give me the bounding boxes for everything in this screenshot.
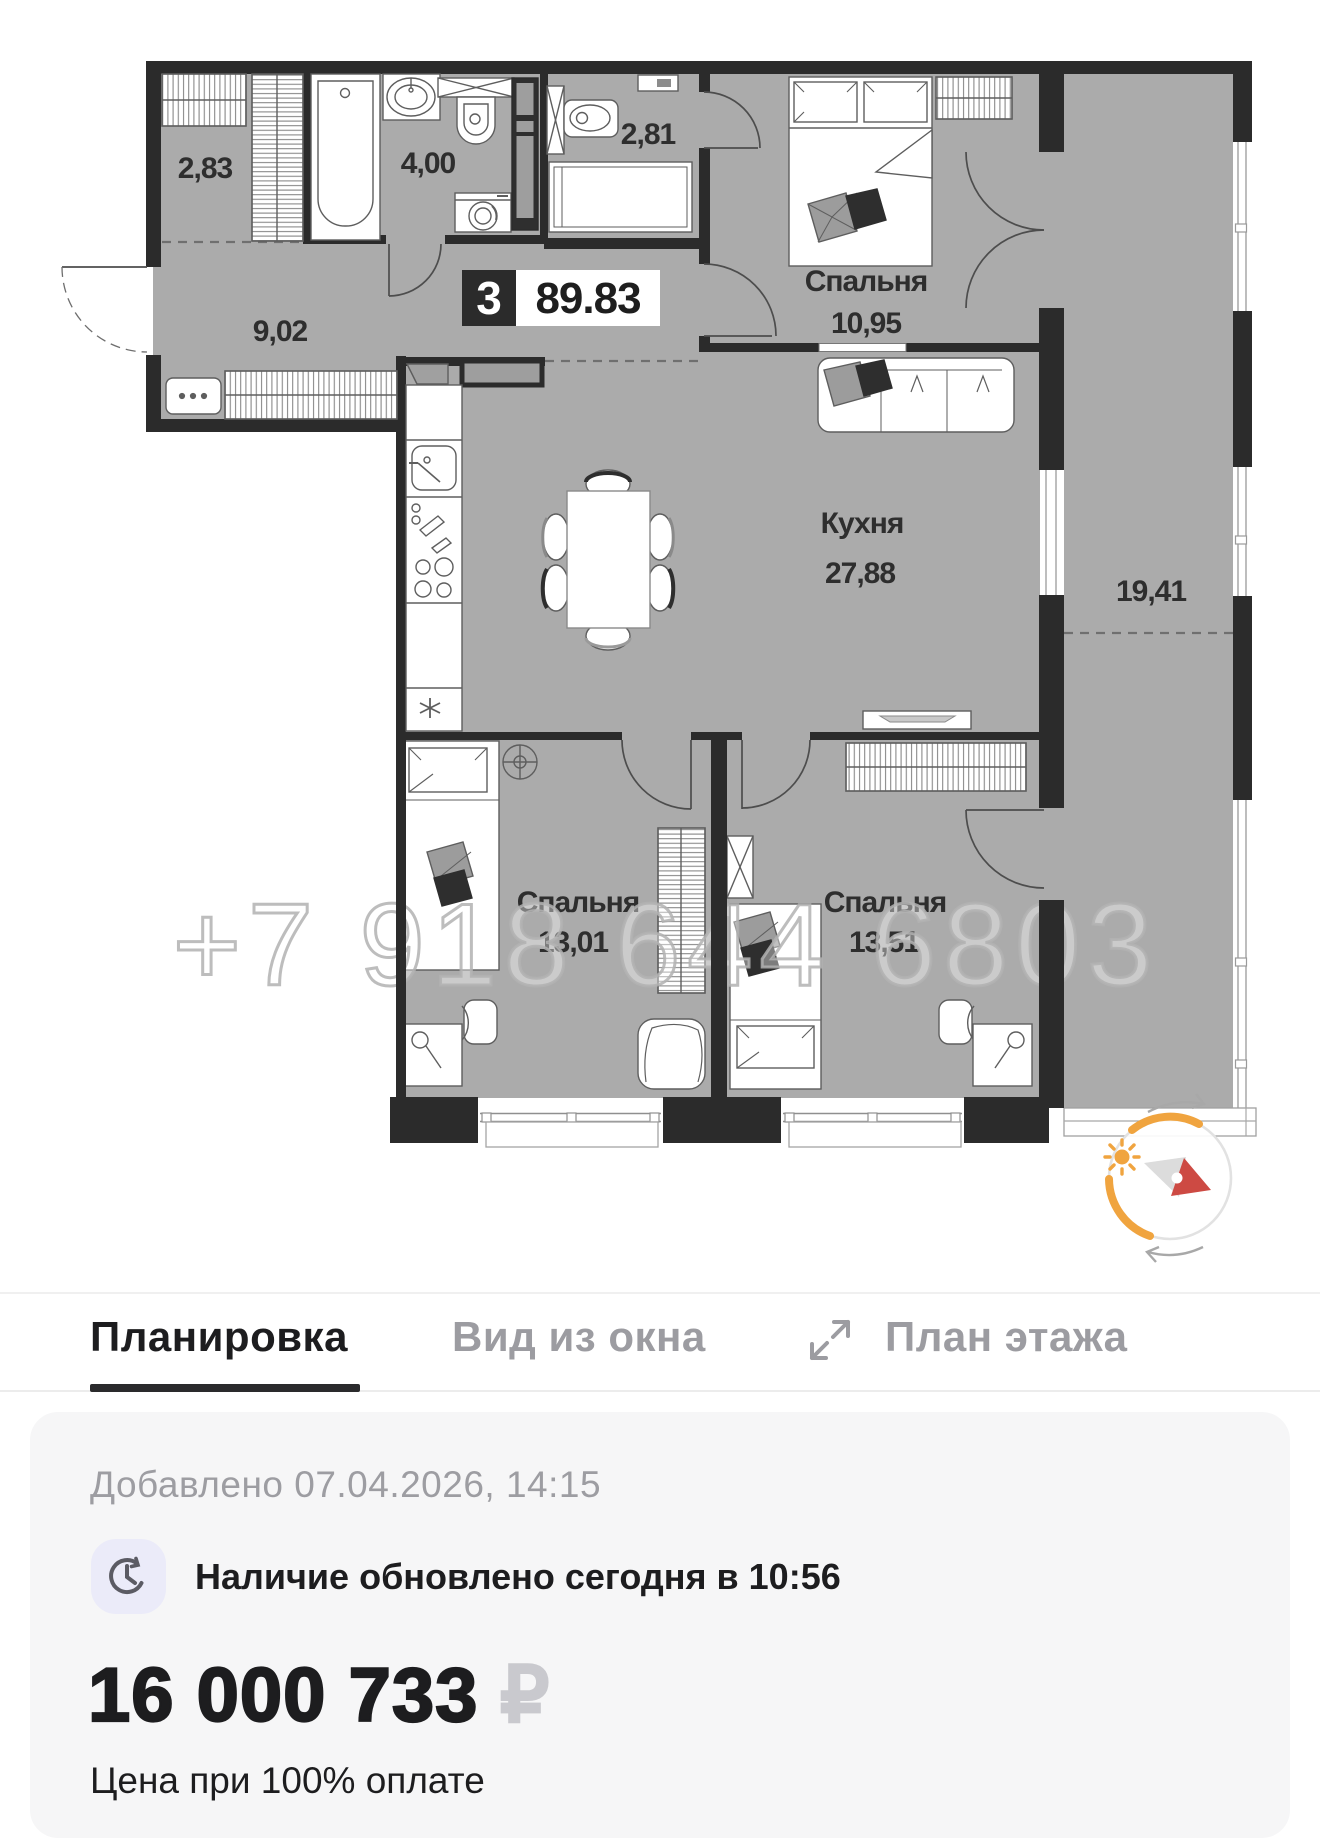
svg-text:27,88: 27,88: [825, 557, 895, 590]
svg-text:Спальня: Спальня: [805, 265, 928, 298]
svg-text:3: 3: [476, 272, 502, 324]
svg-text:2,81: 2,81: [621, 118, 676, 151]
svg-text:2,83: 2,83: [178, 152, 233, 185]
svg-text:19,41: 19,41: [1116, 575, 1186, 608]
svg-text:89.83: 89.83: [535, 274, 640, 323]
svg-text:+7 918 644 6803: +7 918 644 6803: [173, 879, 1160, 1010]
svg-text:9,02: 9,02: [253, 315, 308, 348]
svg-text:Кухня: Кухня: [821, 507, 904, 540]
svg-text:10,95: 10,95: [831, 307, 901, 340]
svg-text:4,00: 4,00: [401, 147, 456, 180]
